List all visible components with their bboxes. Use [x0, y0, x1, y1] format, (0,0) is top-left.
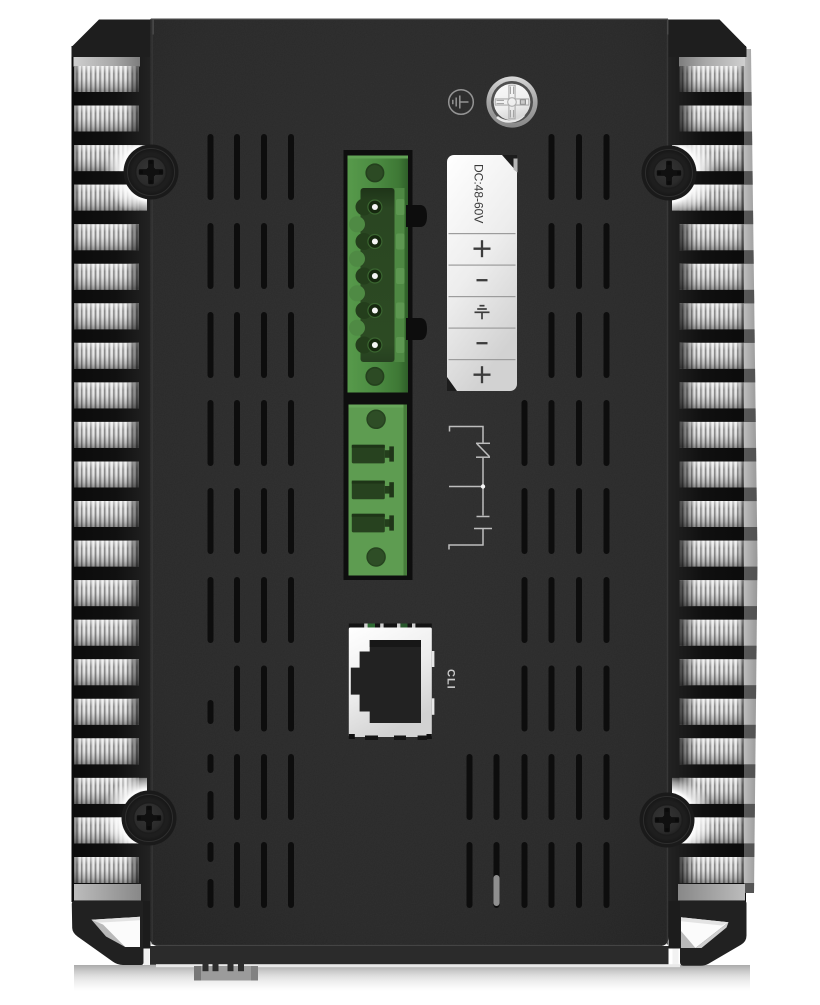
svg-text:DC:48-60V: DC:48-60V — [472, 164, 486, 223]
svg-text:CLI: CLI — [445, 669, 457, 690]
